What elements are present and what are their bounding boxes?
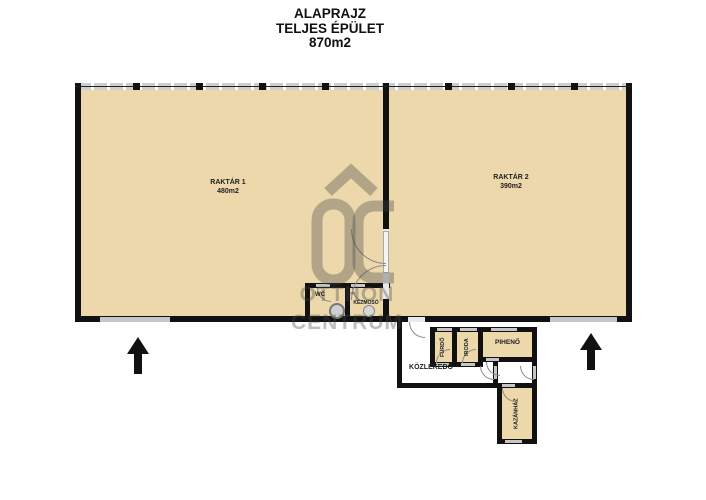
window-furdo bbox=[437, 328, 452, 331]
sink-icon bbox=[363, 305, 375, 317]
wall-left bbox=[75, 83, 81, 322]
toilet-icon bbox=[329, 303, 345, 319]
room-label-iroda: IRODA bbox=[457, 332, 478, 362]
wall-wc-left bbox=[305, 283, 310, 322]
room-label-wc: WC bbox=[306, 292, 334, 300]
column-post bbox=[133, 83, 140, 90]
wall-corridor-bottom bbox=[397, 383, 502, 388]
up-arrow-shaft bbox=[134, 353, 142, 374]
room-label-kazanhaz: KAZÁNHÁZ bbox=[502, 388, 532, 439]
raktar1-area: 480m2 bbox=[178, 188, 278, 197]
room-label-kozlekedo: KÖZLEKEDŐ bbox=[398, 364, 464, 373]
room-label-raktar1: RAKTÁR 1 480m2 bbox=[178, 179, 278, 197]
wall-divider-upper bbox=[383, 83, 389, 229]
title-line-1: ALAPRAJZ bbox=[177, 7, 483, 22]
floorplan-page: ALAPRAJZ TELJES ÉPÜLET 870m2 RAKTÁR 1 48… bbox=[0, 0, 706, 500]
up-arrow-shaft bbox=[587, 349, 595, 370]
column-post bbox=[571, 83, 578, 90]
door-opening-kazanhaz bbox=[502, 384, 515, 387]
title-line-3: 870m2 bbox=[177, 36, 483, 51]
up-arrow-icon bbox=[127, 337, 149, 354]
door-arc bbox=[480, 366, 494, 380]
door-opening-piheno bbox=[486, 358, 499, 361]
title-line-2: TELJES ÉPÜLET bbox=[177, 22, 483, 37]
window-piheno bbox=[491, 328, 517, 331]
up-arrow-icon bbox=[580, 333, 602, 350]
wall-right bbox=[626, 83, 632, 322]
column-post bbox=[322, 83, 329, 90]
window-kazanhaz bbox=[505, 440, 522, 443]
gate-opening-left bbox=[100, 317, 170, 322]
room-label-raktar2: RAKTÁR 2 390m2 bbox=[461, 174, 561, 192]
door-opening-wc bbox=[316, 284, 330, 287]
room-label-furdo: FÜRDŐ bbox=[435, 332, 452, 362]
door-arc bbox=[409, 322, 425, 338]
raktar2-name: RAKTÁR 2 bbox=[461, 174, 561, 183]
window-iroda bbox=[460, 328, 477, 331]
wall-corridor-left bbox=[397, 322, 402, 388]
raktar2-area: 390m2 bbox=[461, 183, 561, 192]
column-post bbox=[508, 83, 515, 90]
room-label-piheno: PIHENŐ bbox=[483, 339, 532, 347]
raktar1-name: RAKTÁR 1 bbox=[178, 179, 278, 188]
page-title: ALAPRAJZ TELJES ÉPÜLET 870m2 bbox=[177, 7, 483, 51]
curtain-wall-line bbox=[75, 86, 632, 87]
column-post bbox=[259, 83, 266, 90]
column-post bbox=[196, 83, 203, 90]
door-arc bbox=[520, 366, 534, 380]
gate-opening-right bbox=[550, 317, 617, 322]
room-label-kezmoso: KÉZMOSÓ bbox=[347, 300, 385, 306]
column-post bbox=[445, 83, 452, 90]
